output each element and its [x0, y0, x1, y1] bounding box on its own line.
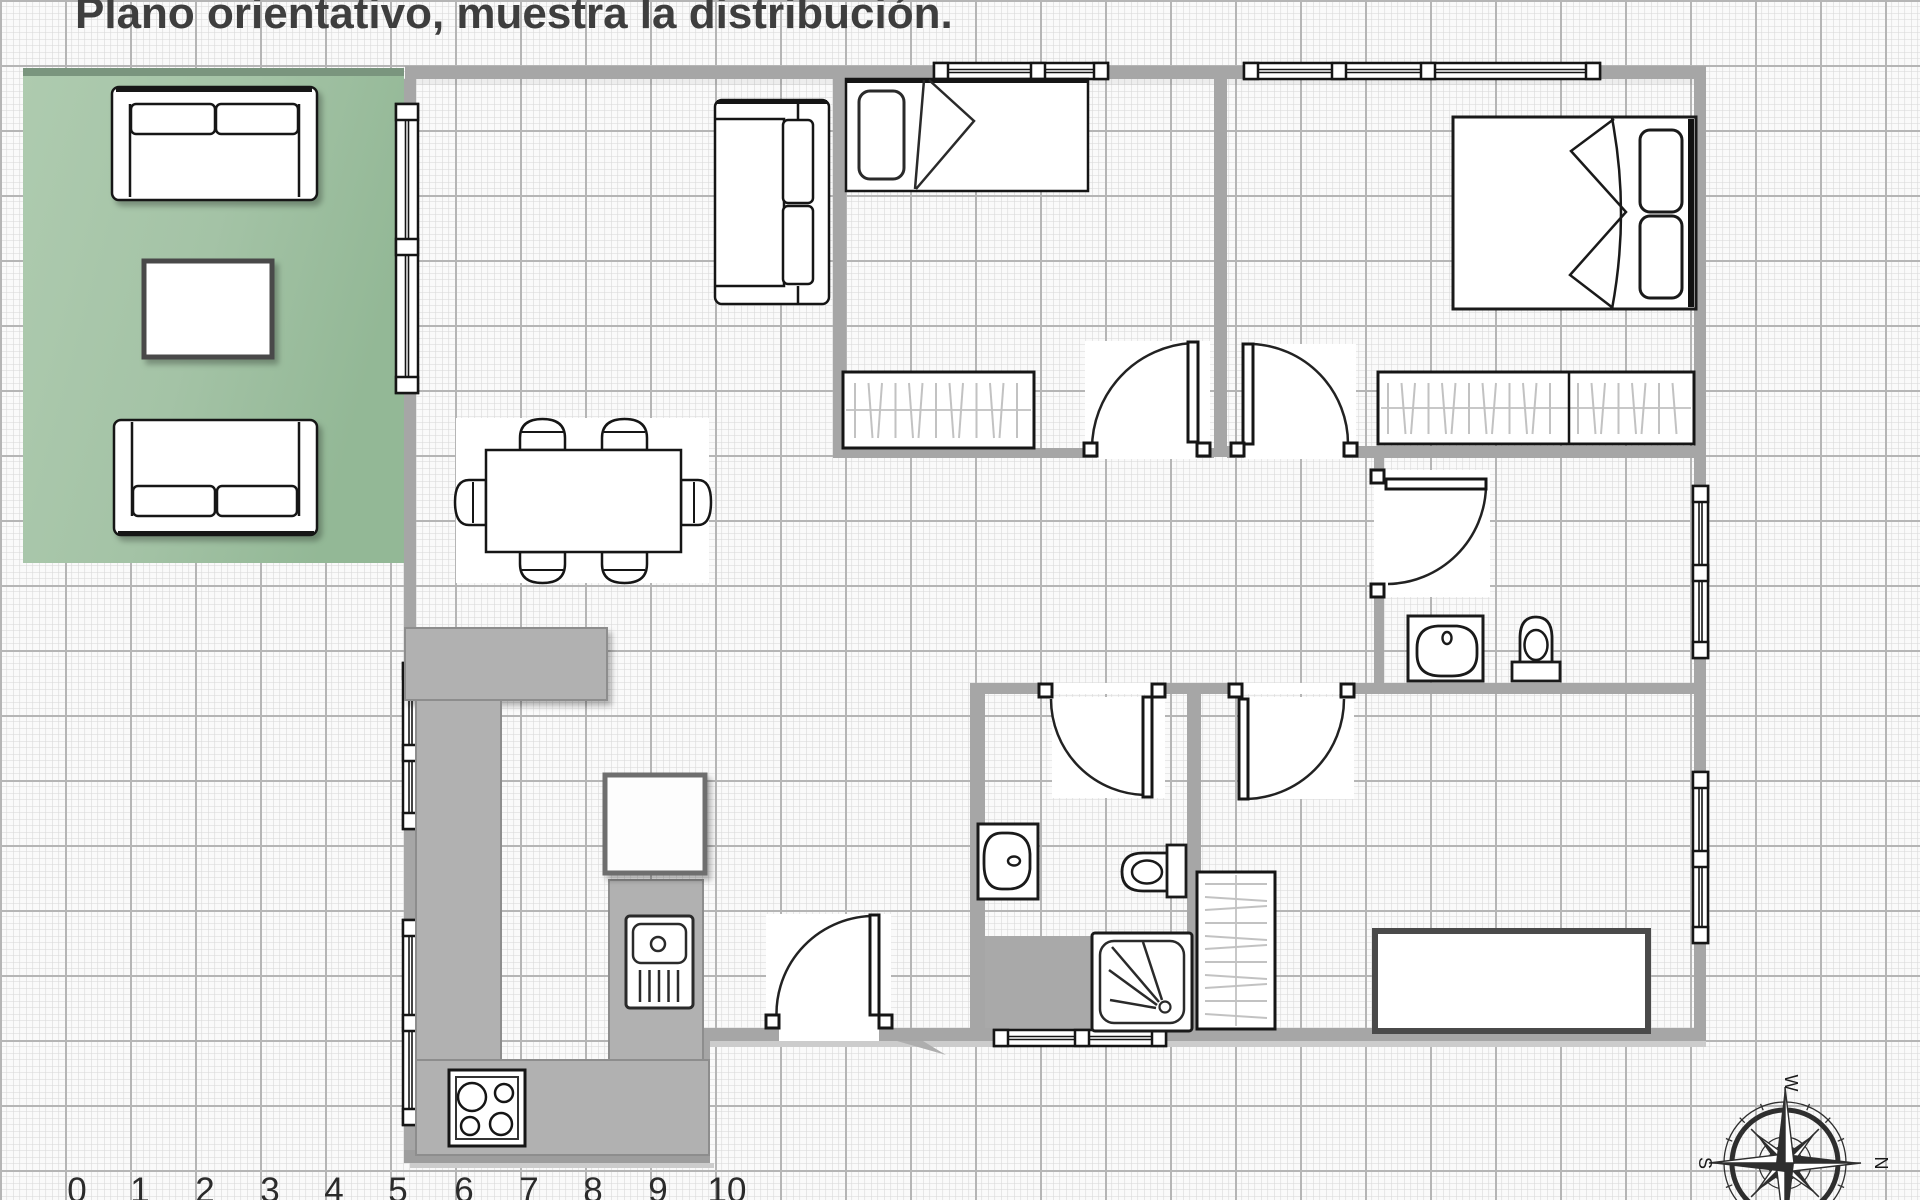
svg-text:Plano orientativo, muestra la: Plano orientativo, muestra la distribuci…	[75, 0, 953, 38]
svg-text:4: 4	[324, 1171, 343, 1200]
svg-text:W: W	[1781, 1075, 1801, 1092]
svg-text:5: 5	[388, 1171, 407, 1200]
svg-text:0: 0	[67, 1171, 86, 1200]
svg-text:S: S	[1695, 1157, 1715, 1169]
svg-text:2: 2	[195, 1171, 214, 1200]
svg-text:8: 8	[583, 1171, 602, 1200]
svg-text:6: 6	[454, 1171, 473, 1200]
svg-text:N: N	[1871, 1157, 1891, 1170]
svg-text:1: 1	[130, 1171, 149, 1200]
svg-text:10: 10	[708, 1171, 747, 1200]
svg-text:7: 7	[519, 1171, 538, 1200]
svg-text:9: 9	[648, 1171, 667, 1200]
svg-text:3: 3	[260, 1171, 279, 1200]
